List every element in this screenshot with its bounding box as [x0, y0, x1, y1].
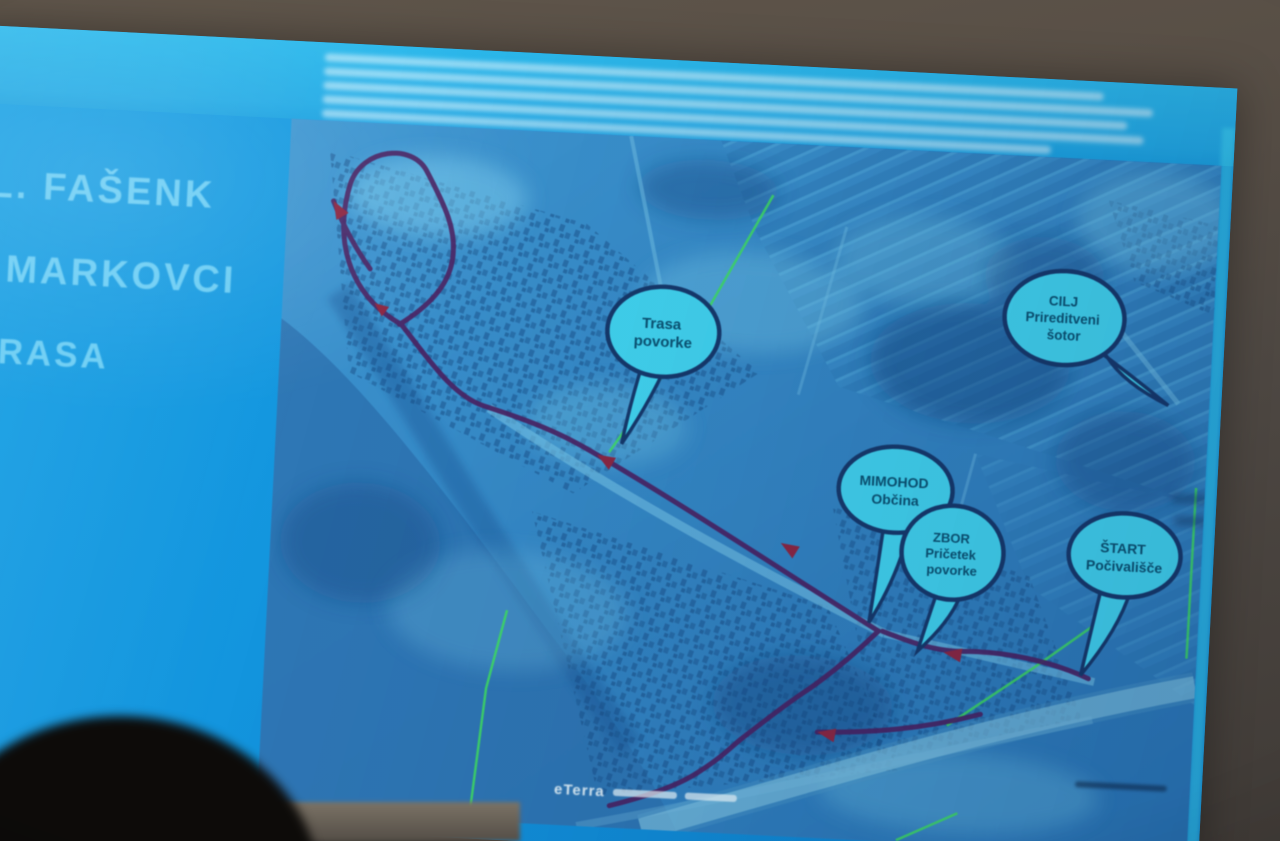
slide-title-line2: MARKOVCI — [5, 248, 238, 303]
satellite-map: Trasa povorke CILJ Prireditveni šotor — [257, 119, 1222, 841]
watermark-blur-text — [613, 789, 677, 799]
callout-label: Trasa povorke — [633, 314, 693, 352]
photo-frame: L. FAŠENK MARKOVCI TRASA — [0, 0, 1280, 841]
projected-slide: L. FAŠENK MARKOVCI TRASA — [0, 24, 1237, 841]
watermark-text: eTerra — [554, 781, 606, 801]
route-map: Trasa povorke CILJ Prireditveni šotor — [257, 119, 1222, 841]
callout-label: ZBOR Pričetek povorke — [924, 529, 981, 579]
slide-section-title: TRASA — [0, 331, 110, 378]
slide-title-line1: L. FAŠENK — [0, 164, 216, 218]
watermark-blur-text — [684, 792, 736, 802]
